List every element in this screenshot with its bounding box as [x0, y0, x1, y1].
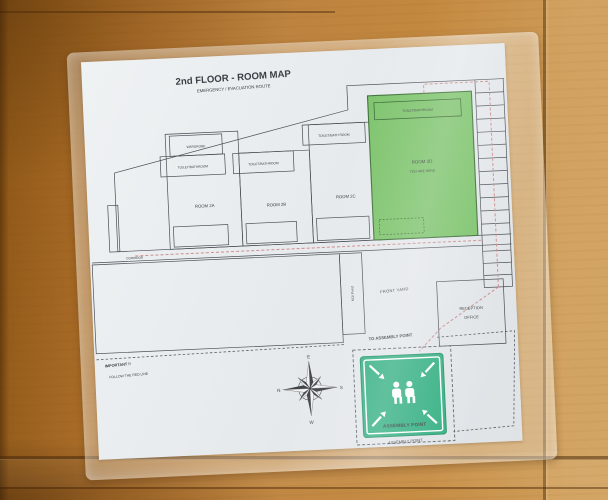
room-2a-label: ROOM 2A — [195, 203, 215, 209]
room-2a-wardrobe-label: WARDROBE — [186, 144, 206, 149]
compass-right-letter: S — [340, 385, 343, 390]
important-note-line2: FOLLOW THE RED LINE — [109, 372, 149, 380]
front-yard-label: FRONT YARD — [380, 286, 409, 294]
map-sheet: 2nd FLOOR - ROOM MAP EMERGENCY / EVACUAT… — [81, 43, 523, 460]
reception-label-2: OFFICE — [464, 314, 479, 320]
plastic-sleeve: 2nd FLOOR - ROOM MAP EMERGENCY / EVACUAT… — [67, 32, 558, 481]
floor-plan: 2nd FLOOR - ROOM MAP EMERGENCY / EVACUAT… — [81, 43, 523, 460]
to-assembly-label: TO ASSEMBLY POINT — [368, 332, 413, 341]
compass-rose: E N S W — [276, 353, 345, 427]
assembly-point-sign: ASSEMBLY POINT ASSEMBLY POINT — [353, 346, 455, 447]
wood-groove-top — [0, 11, 335, 13]
photo-of-evacuation-map: 2nd FLOOR - ROOM MAP EMERGENCY / EVACUAT… — [0, 0, 608, 500]
reception-label-1: RECEPTION — [459, 305, 483, 311]
room-2a: WARDROBE TOILET/BATHROOM ROOM 2A — [159, 131, 243, 250]
room-2b-label: ROOM 2B — [267, 202, 287, 208]
room-2b: TOILET/BATHROOM ROOM 2B — [233, 150, 314, 246]
room-2d-highlighted: TOILET/BATHROOM ROOM 2D YOU ARE HERE — [367, 91, 477, 240]
wood-edge-left — [0, 0, 9, 500]
corridor-label: CORRIDOR — [126, 256, 144, 261]
room-2c-bath-label: TOILET/BATH ROOM — [318, 133, 350, 138]
assembly-sign-caption: ASSEMBLY POINT — [388, 437, 423, 445]
lower-yard: KOI Pond — [92, 253, 365, 354]
left-wall-door — [108, 205, 120, 252]
important-note-line1: IMPORTANT !! — [105, 362, 131, 369]
koi-pond-label: KOI Pond — [350, 286, 355, 301]
room-2a-bath-label: TOILET/BATHROOM — [178, 164, 209, 169]
room-2b-bath-label: TOILET/BATHROOM — [248, 161, 279, 166]
compass-top-letter: E — [307, 354, 310, 359]
room-2d-label: ROOM 2D — [412, 159, 433, 165]
compass-left-letter: N — [277, 388, 281, 393]
room-2c-label: ROOM 2C — [336, 193, 356, 199]
compass-bottom-letter: W — [309, 420, 314, 425]
